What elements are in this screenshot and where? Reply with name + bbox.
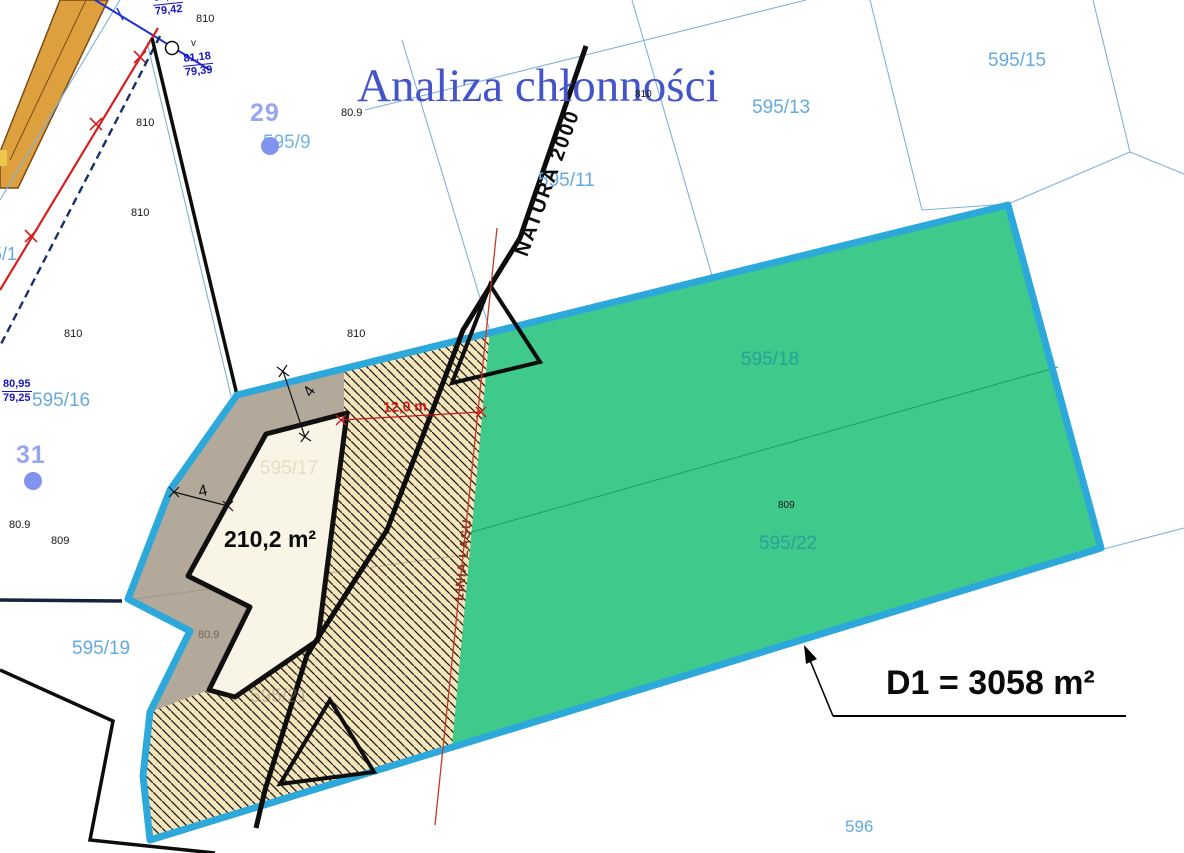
green-area-d1	[452, 205, 1101, 747]
site-area	[128, 205, 1101, 840]
leader-arrowhead	[804, 645, 817, 664]
survey-lines	[0, 0, 237, 395]
navy-dashed-line	[0, 36, 160, 346]
black-parcel-edge	[152, 38, 237, 395]
yellow-marker	[0, 150, 7, 166]
map-canvas	[0, 0, 1184, 853]
map-page: Analiza chłonności595/15595/13595/11595/…	[0, 0, 1184, 853]
survey-point-circle	[166, 42, 179, 55]
d1-leader	[804, 645, 1126, 716]
road-band	[0, 0, 108, 188]
